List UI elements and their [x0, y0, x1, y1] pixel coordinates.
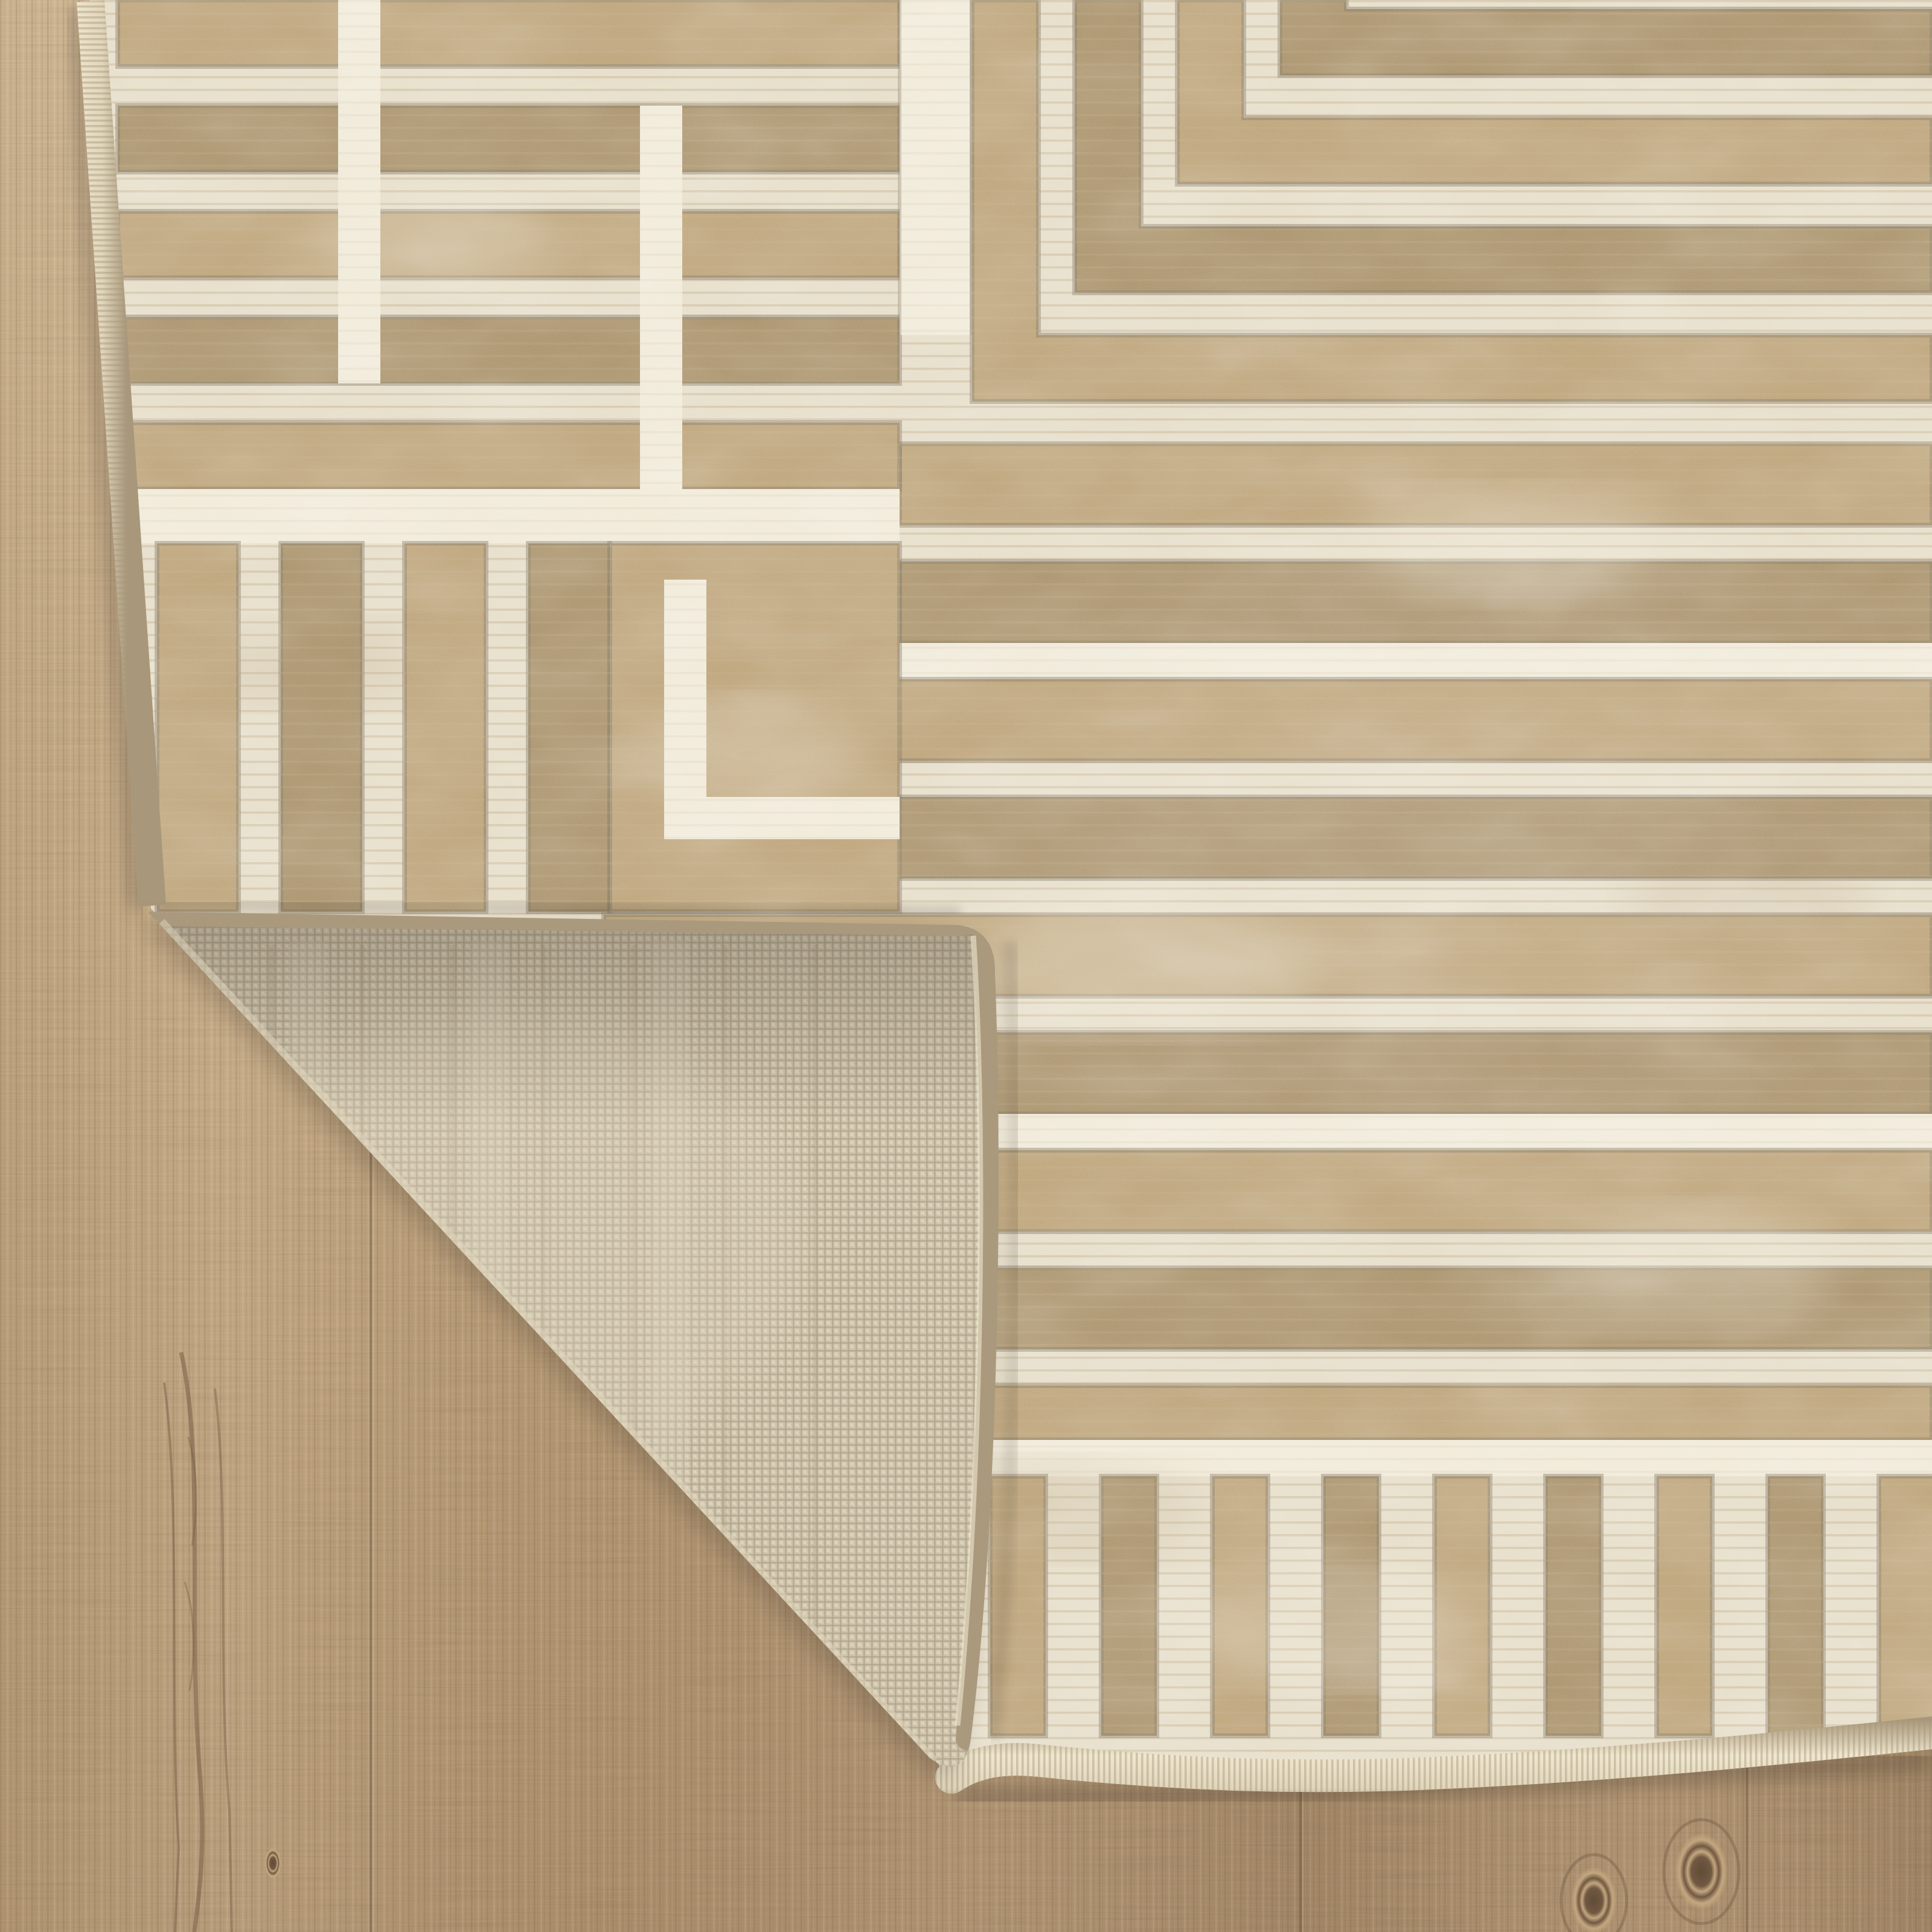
rug-product-photo: Beige and ivory geometric Greek-key area…	[0, 0, 1932, 1932]
scene-image: Beige and ivory geometric Greek-key area…	[0, 0, 1932, 1932]
